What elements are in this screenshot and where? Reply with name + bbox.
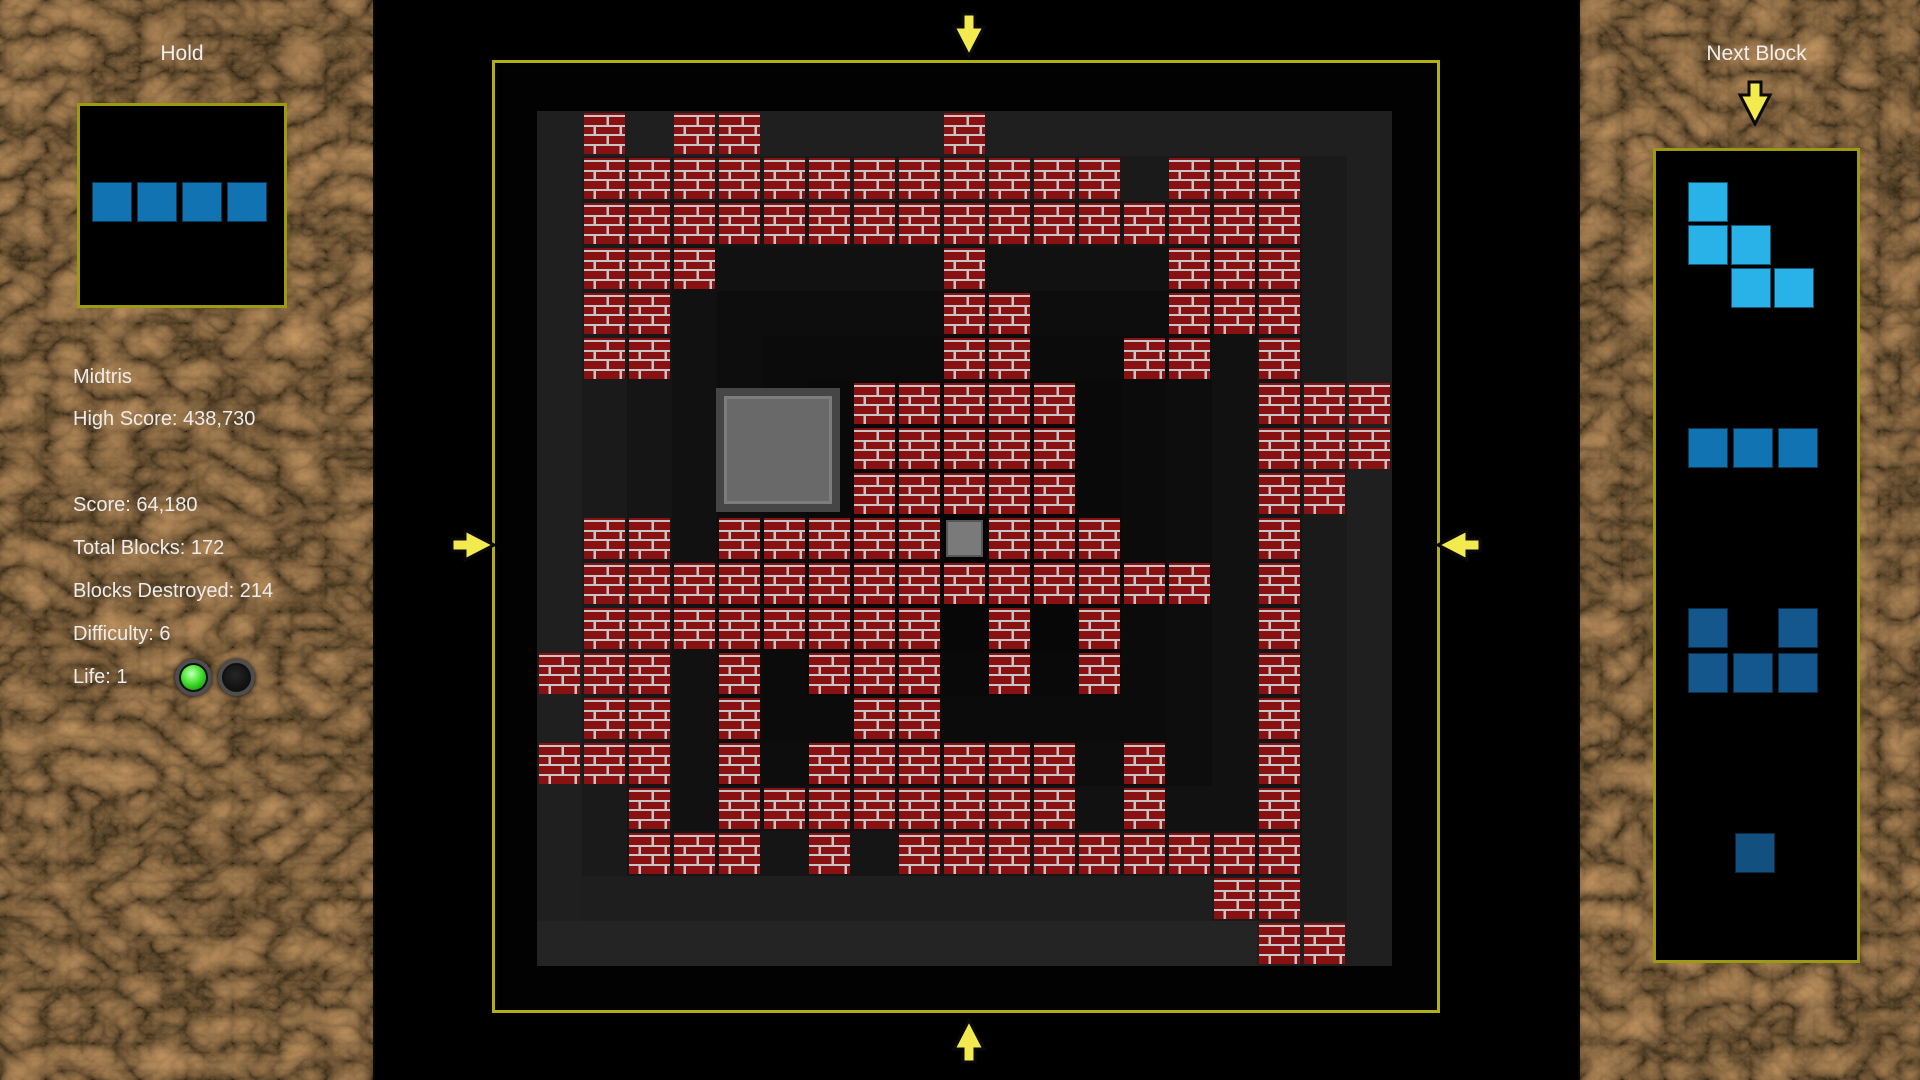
brick-block: [584, 158, 625, 199]
brick-block: [944, 743, 985, 784]
brick-block: [1259, 833, 1300, 874]
brick-block: [1214, 833, 1255, 874]
brick-block: [854, 563, 895, 604]
brick-block: [944, 248, 985, 289]
brick-block: [989, 293, 1030, 334]
brick-block: [809, 563, 850, 604]
brick-block: [899, 698, 940, 739]
brick-block: [1259, 473, 1300, 514]
brick-block: [674, 158, 715, 199]
brick-block: [809, 653, 850, 694]
u-piece-square: [1688, 608, 1728, 648]
brick-block: [899, 473, 940, 514]
brick-block: [1259, 923, 1300, 964]
w-piece-square: [1774, 268, 1814, 308]
brick-block: [1124, 563, 1165, 604]
life-stat: Life: 1: [73, 666, 127, 689]
brick-block: [944, 383, 985, 424]
brick-block: [584, 113, 625, 154]
brick-block: [1259, 563, 1300, 604]
brick-block: [1304, 428, 1345, 469]
brick-block: [944, 833, 985, 874]
brick-block: [629, 203, 670, 244]
brick-block: [1349, 428, 1390, 469]
brick-block: [719, 698, 760, 739]
brick-block: [764, 563, 805, 604]
brick-block: [1034, 473, 1075, 514]
difficulty-stat: Difficulty: 6: [73, 623, 170, 646]
life-led-off: [218, 659, 255, 696]
brick-block: [989, 563, 1030, 604]
arrow-up-icon: [949, 1018, 989, 1064]
w-piece-square: [1688, 182, 1728, 222]
brick-block: [719, 743, 760, 784]
brick-block: [674, 608, 715, 649]
big-gray-block: [716, 388, 840, 512]
next-block-title: Next Block: [1653, 42, 1860, 66]
i3-piece-square: [1733, 428, 1773, 468]
brick-block: [1079, 608, 1120, 649]
brick-block: [1124, 203, 1165, 244]
brick-block: [539, 743, 580, 784]
brick-block: [899, 428, 940, 469]
brick-block: [854, 518, 895, 559]
game-board[interactable]: [492, 60, 1440, 1013]
gray-block: [946, 520, 983, 557]
brick-block: [629, 293, 670, 334]
left-panel: Hold Midtris High Score: 438,730 Score: …: [0, 0, 375, 1080]
brick-block: [1124, 338, 1165, 379]
brick-block: [584, 653, 625, 694]
brick-block: [1259, 293, 1300, 334]
brick-block: [764, 608, 805, 649]
u-piece-square: [1778, 608, 1818, 648]
brick-block: [989, 788, 1030, 829]
brick-block: [584, 203, 625, 244]
brick-block: [1214, 203, 1255, 244]
brick-block: [1034, 383, 1075, 424]
w-piece-square: [1731, 225, 1771, 265]
brick-block: [584, 563, 625, 604]
blocks-destroyed-stat: Blocks Destroyed: 214: [73, 580, 273, 603]
brick-block: [719, 203, 760, 244]
hold-piece-square: [92, 182, 132, 222]
brick-block: [809, 788, 850, 829]
brick-block: [1169, 203, 1210, 244]
w-piece-square: [1731, 268, 1771, 308]
brick-block: [1259, 248, 1300, 289]
high-score-stat: High Score: 438,730: [73, 408, 255, 431]
brick-block: [854, 473, 895, 514]
brick-block: [584, 338, 625, 379]
brick-block: [944, 473, 985, 514]
brick-block: [899, 653, 940, 694]
brick-block: [989, 743, 1030, 784]
brick-block: [764, 788, 805, 829]
brick-block: [584, 248, 625, 289]
brick-block: [719, 563, 760, 604]
i3-piece-square: [1778, 428, 1818, 468]
brick-block: [1124, 743, 1165, 784]
brick-block: [989, 338, 1030, 379]
brick-block: [629, 158, 670, 199]
brick-block: [629, 338, 670, 379]
brick-block: [1124, 788, 1165, 829]
brick-block: [854, 428, 895, 469]
single-piece-square: [1735, 833, 1775, 873]
brick-block: [989, 383, 1030, 424]
brick-block: [1079, 653, 1120, 694]
brick-block: [944, 338, 985, 379]
brick-block: [719, 518, 760, 559]
brick-block: [1259, 743, 1300, 784]
right-panel: Next Block: [1578, 0, 1920, 1080]
brick-block: [1034, 203, 1075, 244]
brick-block: [1259, 698, 1300, 739]
brick-block: [1034, 518, 1075, 559]
brick-block: [809, 608, 850, 649]
u-piece-square: [1688, 653, 1728, 693]
brick-block: [1169, 158, 1210, 199]
brick-block: [629, 788, 670, 829]
brick-block: [719, 113, 760, 154]
brick-block: [1259, 428, 1300, 469]
brick-block: [764, 203, 805, 244]
u-piece-square: [1778, 653, 1818, 693]
board-bg-patch: [582, 876, 1212, 921]
brick-block: [1079, 563, 1120, 604]
brick-block: [944, 113, 985, 154]
brick-block: [944, 788, 985, 829]
i3-piece-square: [1688, 428, 1728, 468]
brick-block: [1304, 473, 1345, 514]
brick-block: [629, 653, 670, 694]
brick-block: [629, 248, 670, 289]
brick-block: [1169, 293, 1210, 334]
brick-block: [1169, 248, 1210, 289]
brick-block: [1214, 158, 1255, 199]
brick-block: [1259, 203, 1300, 244]
score-stat: Score: 64,180: [73, 494, 198, 517]
brick-block: [1214, 293, 1255, 334]
brick-block: [629, 563, 670, 604]
brick-block: [1034, 563, 1075, 604]
brick-block: [989, 833, 1030, 874]
brick-block: [584, 518, 625, 559]
brick-block: [809, 158, 850, 199]
brick-block: [1259, 383, 1300, 424]
board-bg-patch: [537, 921, 1257, 966]
brick-block: [719, 608, 760, 649]
brick-block: [989, 653, 1030, 694]
brick-block: [989, 158, 1030, 199]
brick-block: [899, 203, 940, 244]
total-blocks-stat: Total Blocks: 172: [73, 537, 224, 560]
brick-block: [719, 158, 760, 199]
hold-title: Hold: [77, 42, 287, 66]
brick-block: [809, 743, 850, 784]
brick-block: [719, 788, 760, 829]
brick-block: [1034, 158, 1075, 199]
brick-block: [944, 293, 985, 334]
w-piece-square: [1688, 225, 1728, 265]
life-led-on: [175, 659, 212, 696]
brick-block: [944, 563, 985, 604]
brick-block: [1079, 833, 1120, 874]
brick-block: [854, 788, 895, 829]
brick-block: [899, 743, 940, 784]
board-interior[interactable]: [495, 63, 1437, 1010]
brick-block: [1169, 338, 1210, 379]
brick-block: [1034, 743, 1075, 784]
brick-block: [1034, 833, 1075, 874]
brick-block: [1214, 878, 1255, 919]
brick-block: [719, 833, 760, 874]
brick-block: [1259, 653, 1300, 694]
u-piece-square: [1733, 653, 1773, 693]
brick-block: [809, 203, 850, 244]
brick-block: [584, 698, 625, 739]
next-block-arrow-down-icon: [1735, 80, 1775, 126]
game-title: Midtris: [73, 366, 132, 389]
arrow-down-icon: [949, 12, 989, 58]
brick-block: [674, 563, 715, 604]
brick-block: [1079, 518, 1120, 559]
brick-block: [899, 158, 940, 199]
brick-block: [1034, 428, 1075, 469]
brick-block: [989, 518, 1030, 559]
brick-block: [629, 743, 670, 784]
brick-block: [899, 563, 940, 604]
brick-block: [1259, 608, 1300, 649]
brick-block: [944, 158, 985, 199]
brick-block: [1169, 563, 1210, 604]
brick-block: [629, 698, 670, 739]
brick-block: [629, 518, 670, 559]
brick-block: [1259, 518, 1300, 559]
brick-block: [809, 518, 850, 559]
brick-block: [1259, 878, 1300, 919]
brick-block: [854, 158, 895, 199]
brick-block: [1259, 788, 1300, 829]
hold-piece-square: [227, 182, 267, 222]
brick-block: [854, 698, 895, 739]
midtris-game-screen: Hold Midtris High Score: 438,730 Score: …: [0, 0, 1920, 1080]
brick-block: [854, 608, 895, 649]
brick-block: [1169, 833, 1210, 874]
brick-block: [584, 608, 625, 649]
brick-block: [989, 608, 1030, 649]
brick-block: [1079, 158, 1120, 199]
brick-block: [1124, 833, 1165, 874]
brick-block: [539, 653, 580, 694]
brick-block: [989, 428, 1030, 469]
brick-block: [1079, 203, 1120, 244]
arrow-right-icon: [450, 525, 496, 565]
brick-block: [674, 113, 715, 154]
brick-block: [854, 743, 895, 784]
brick-block: [764, 158, 805, 199]
brick-block: [899, 833, 940, 874]
hold-piece-square: [182, 182, 222, 222]
brick-block: [1214, 248, 1255, 289]
brick-block: [719, 653, 760, 694]
brick-block: [944, 203, 985, 244]
brick-block: [584, 293, 625, 334]
brick-block: [1304, 383, 1345, 424]
brick-block: [1259, 158, 1300, 199]
brick-block: [989, 473, 1030, 514]
brick-block: [989, 203, 1030, 244]
brick-block: [674, 203, 715, 244]
brick-block: [764, 518, 805, 559]
brick-block: [674, 833, 715, 874]
brick-block: [854, 653, 895, 694]
brick-block: [899, 383, 940, 424]
brick-block: [1034, 788, 1075, 829]
brick-block: [944, 428, 985, 469]
brick-block: [584, 743, 625, 784]
brick-block: [629, 608, 670, 649]
brick-block: [899, 788, 940, 829]
brick-block: [1349, 383, 1390, 424]
brick-block: [854, 203, 895, 244]
brick-block: [629, 833, 670, 874]
brick-block: [674, 248, 715, 289]
brick-block: [899, 608, 940, 649]
hold-piece-square: [137, 182, 177, 222]
brick-block: [1304, 923, 1345, 964]
brick-block: [1259, 338, 1300, 379]
brick-block: [854, 383, 895, 424]
brick-block: [899, 518, 940, 559]
arrow-left-icon: [1436, 525, 1482, 565]
brick-block: [809, 833, 850, 874]
